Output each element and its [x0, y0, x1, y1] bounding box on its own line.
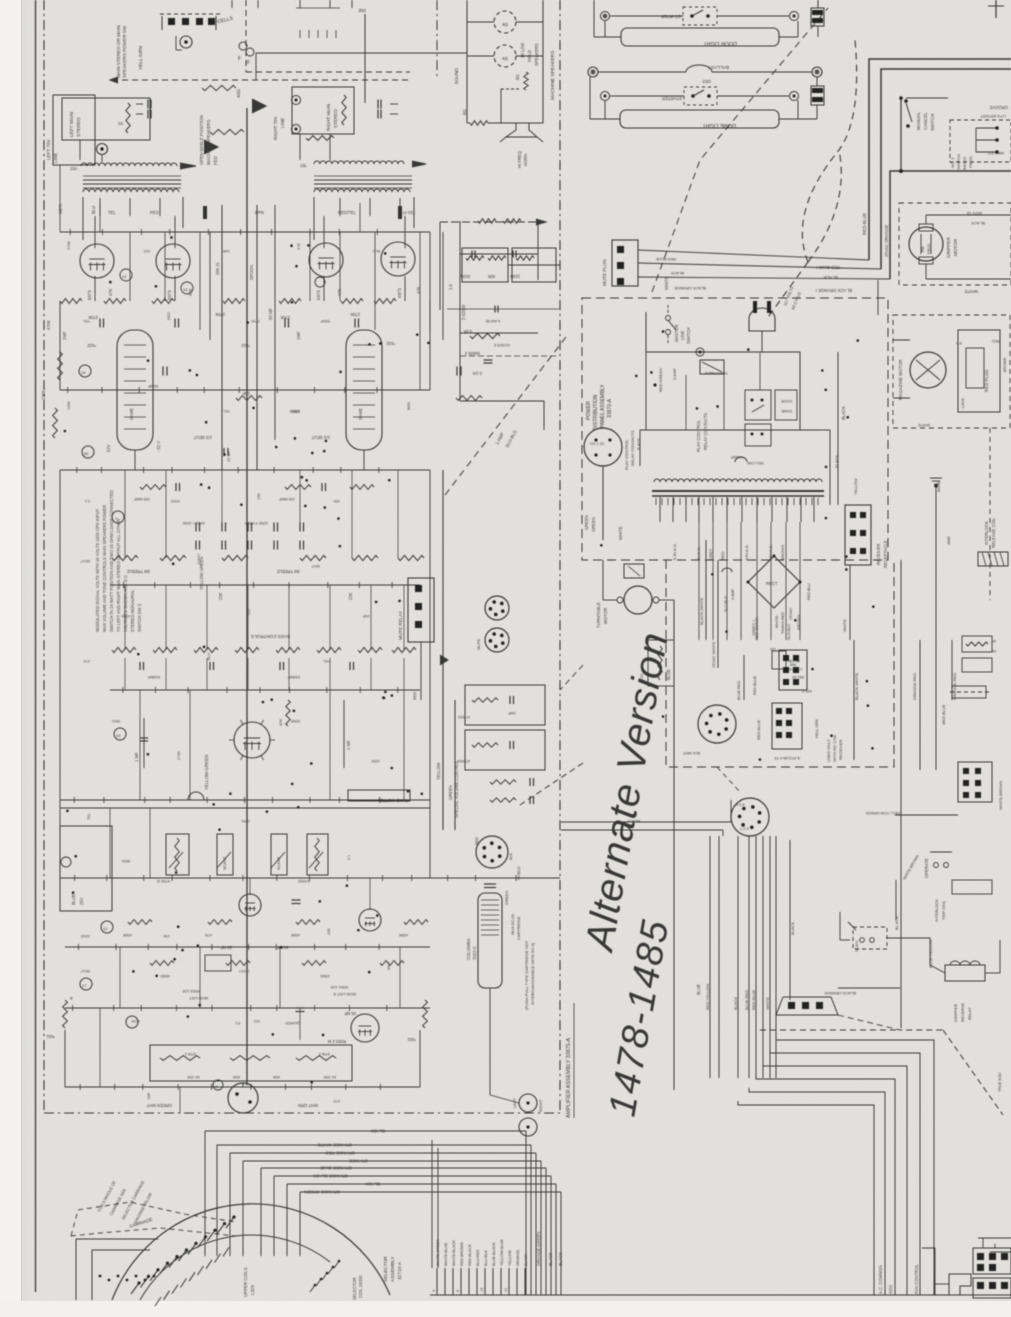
svg-text:MAX VOLUME AND TONE CONTROLS: MAX VOLUME AND TONE CONTROLS MAIN SPEAKE…	[102, 505, 107, 632]
svg-text:RED-YELLOW: RED-YELLOW	[705, 983, 710, 1010]
svg-text:BLUE-BLACK: BLUE-BLACK	[492, 1242, 496, 1266]
svg-text:METI: METI	[58, 204, 63, 214]
svg-text:220Ω: 220Ω	[171, 499, 180, 503]
svg-text:6973: 6973	[167, 290, 172, 300]
svg-text:5OUND: 5OUND	[454, 67, 459, 84]
svg-text:ORANGE: ORANGE	[516, 1249, 520, 1266]
svg-text:RED-BLACK: RED-BLACK	[468, 1244, 472, 1266]
svg-text:RIGHT MAIN: RIGHT MAIN	[326, 104, 331, 131]
svg-text:MOTOR: MOTOR	[603, 608, 608, 624]
svg-text:17: 17	[82, 983, 87, 988]
svg-text:1/2 6EU7: 1/2 6EU7	[193, 435, 212, 440]
svg-text:05 MF: 05 MF	[344, 1011, 356, 1016]
svg-text:6973: 6973	[316, 290, 321, 300]
svg-text:RED: RED	[167, 312, 171, 320]
svg-text:MAGAZINE MOTOR: MAGAZINE MOTOR	[898, 360, 903, 400]
svg-text:1MF: 1MF	[296, 331, 301, 340]
svg-text:6EU7: 6EU7	[81, 969, 91, 973]
svg-text:TEL: TEL	[108, 210, 116, 215]
svg-text:47K: 47K	[205, 933, 212, 938]
svg-text:6.AM 08: 6.AM 08	[486, 319, 500, 323]
svg-text:- 52 V: - 52 V	[156, 441, 161, 452]
svg-text:DOOR LIGHT: DOOR LIGHT	[703, 40, 737, 46]
svg-text:33870-A: 33870-A	[607, 398, 613, 418]
svg-text:A(G): A(G)	[888, 1285, 893, 1294]
svg-text:6EU7: 6EU7	[81, 559, 91, 563]
svg-text:022: 022	[254, 1019, 260, 1023]
svg-text:220K: 220K	[41, 390, 46, 400]
svg-text:STI: STI	[956, 341, 962, 345]
svg-text:SWITCH SW 3: SWITCH SW 3	[137, 603, 142, 632]
svg-text:1MF: 1MF	[147, 1092, 151, 1100]
svg-text:ORANGE: ORANGE	[349, 1159, 368, 1164]
svg-text:TURNTABLE: TURNTABLE	[596, 602, 601, 628]
svg-text:22K: 22K	[348, 592, 353, 600]
svg-text:TURNTABLE: TURNTABLE	[704, 371, 728, 376]
svg-text:0.1: 0.1	[347, 855, 351, 860]
svg-text:K09: K09	[232, 1075, 240, 1080]
svg-text:SELECTOR: SELECTOR	[352, 1278, 357, 1301]
svg-text:033MF: 033MF	[147, 675, 160, 680]
svg-text:ORANGE-WHITE: ORANGE-WHITE	[317, 1143, 352, 1148]
svg-text:270K: 270K	[350, 312, 360, 317]
svg-text:BLUE-YELLOW: BLUE-YELLOW	[928, 939, 933, 968]
svg-text:SELECTOR: SELECTOR	[383, 1256, 389, 1282]
svg-text:00605 2: 00605 2	[464, 351, 480, 356]
svg-text:OE3: OE3	[702, 79, 711, 84]
svg-text:220Ω: 220Ω	[81, 934, 90, 938]
svg-text:25VAC WHITE: 25VAC WHITE	[711, 641, 716, 668]
svg-text:SWITCH: SWITCH	[686, 327, 691, 344]
svg-text:HELL GRN: HELL GRN	[815, 719, 819, 738]
svg-text:LINE: LINE	[280, 118, 285, 128]
svg-text:1MF: 1MF	[222, 249, 230, 253]
svg-text:GRIPPER: GRIPPER	[946, 237, 951, 258]
svg-text:MASTER: MASTER	[674, 325, 679, 342]
svg-text:FIELD: FIELD	[927, 243, 931, 254]
svg-text:3685: 3685	[946, 535, 951, 545]
svg-text:BLACK: BLACK	[371, 1129, 385, 1134]
svg-text:BL ACK ORANGE I: BL ACK ORANGE I	[816, 288, 852, 293]
svg-text:50 MF: 50 MF	[268, 308, 273, 320]
svg-text:260 J1: 260 J1	[215, 262, 220, 275]
svg-text:AMPLIFIER ASSEMBLY 33875-A: AMPLIFIER ASSEMBLY 33875-A	[566, 1037, 572, 1118]
svg-text:TRIP COIL: TRIP COIL	[941, 900, 946, 920]
svg-text:GRN: GRN	[241, 819, 250, 823]
svg-text:CARTRIDGE: CARTRIDGE	[516, 916, 521, 940]
svg-text:50MF: 50MF	[147, 384, 158, 389]
svg-text:40Ω: 40Ω	[236, 89, 242, 98]
svg-text:RED-BLUE: RED-BLUE	[862, 213, 867, 235]
svg-text:100K: 100K	[67, 401, 71, 410]
svg-text:RELAY CONTACTS: RELAY CONTACTS	[703, 413, 708, 450]
svg-text:J50: J50	[358, 8, 366, 14]
svg-text:8Ω: 8Ω	[515, 75, 520, 80]
svg-text:BLUE-RED: BLUE-RED	[737, 681, 741, 700]
svg-text:ORANGE-GREEN: ORANGE-GREEN	[304, 1190, 340, 1195]
svg-text:4700 Ω: 4700 Ω	[157, 879, 170, 884]
svg-text:FAN CONTROL: FAN CONTROL	[914, 1264, 919, 1294]
svg-text:270K: 270K	[177, 751, 181, 760]
svg-text:OS 1 20: OS 1 20	[590, 442, 604, 446]
svg-text:15: 15	[480, 1288, 484, 1292]
svg-text:DISTRIBUTION: DISTRIBUTION	[593, 394, 599, 430]
svg-text:3M TREBLE: 3M TREBLE	[127, 569, 150, 574]
svg-text:GREEN WHT: GREEN WHT	[146, 1103, 172, 1108]
svg-text:SWITCH IN 24 WATT POSITION AND: SWITCH IN 24 WATT POSITION AND TWO 16 OH…	[109, 490, 114, 632]
svg-text:R353 2 M: R353 2 M	[327, 1039, 346, 1044]
svg-text:SWITCH: SWITCH	[930, 114, 935, 131]
svg-text:COLUMBIA: COLUMBIA	[466, 938, 471, 960]
svg-text:RED: RED	[992, 339, 1000, 343]
svg-text:BLUE: BLUE	[666, 669, 671, 680]
svg-text:4Ω: 4Ω	[502, 56, 509, 61]
svg-text:BRN: BRN	[407, 402, 411, 410]
svg-text:RED: RED	[112, 719, 120, 723]
svg-text:BLACK: BLACK	[524, 1253, 528, 1266]
svg-text:33K: 33K	[327, 928, 331, 935]
svg-text:MOD-LIST A: MOD-LIST A	[333, 992, 356, 997]
svg-text:DOW: DOW	[460, 274, 470, 279]
svg-text:505: 505	[487, 274, 495, 279]
svg-text:MED-BLUE: MED-BLUE	[941, 704, 946, 725]
svg-text:WHITE-: WHITE-	[775, 614, 779, 628]
svg-text:430K: 430K	[290, 933, 300, 938]
svg-text:47K: 47K	[333, 1099, 340, 1103]
svg-text:ORANGE-BLUE: ORANGE-BLUE	[320, 1166, 352, 1171]
svg-text:4700Ω: 4700Ω	[458, 759, 470, 764]
svg-text:POWER: POWER	[586, 401, 592, 420]
svg-text:ORANGE-GREEN: ORANGE-GREEN	[536, 1232, 541, 1266]
svg-text:A 3Y113A-0 T3: A 3Y113A-0 T3	[775, 756, 800, 760]
svg-text:RED-BROWN: RED-BROWN	[460, 1242, 464, 1266]
svg-text:R553 126: R553 126	[182, 989, 200, 994]
svg-text:BRN: BRN	[255, 210, 264, 215]
svg-text:47K: 47K	[278, 719, 283, 726]
svg-text:SHIELD: SHIELD	[517, 866, 521, 880]
svg-text:QUH02I: QUH02I	[286, 1021, 300, 1026]
svg-text:RELEASE COIL: RELEASE COIL	[991, 517, 996, 548]
svg-text:*001: *001	[46, 1034, 55, 1039]
svg-text:WHITE: WHITE	[842, 619, 847, 632]
svg-text:TRUE KOU: TRUE KOU	[998, 1072, 1002, 1092]
svg-text:YELLOW: YELLOW	[747, 461, 764, 466]
svg-text:2-02550: 2-02550	[461, 304, 466, 320]
svg-text:47K: 47K	[337, 288, 342, 296]
svg-text:WHITE: WHITE	[964, 289, 978, 294]
svg-text:RED-BLUE: RED-BLUE	[751, 989, 756, 1010]
svg-text:INTERCHANGEABLE WITH SC-4): INTERCHANGEABLE WITH SC-4)	[530, 942, 535, 1005]
svg-text:12AX7: 12AX7	[197, 554, 201, 565]
svg-text:15L: 15L	[300, 163, 308, 168]
svg-text:BROWN: BROWN	[780, 545, 785, 560]
svg-text:400Ω: 400Ω	[160, 974, 170, 979]
svg-text:RECEIVER: RECEIVER	[838, 739, 843, 760]
svg-text:BROWN: BROWN	[1003, 357, 1007, 372]
svg-text:470K: 470K	[121, 614, 130, 618]
svg-text:TO LEFT AND RIGHT MAIN STEREO: TO LEFT AND RIGHT MAIN STEREO OUTPUT ALL…	[116, 519, 121, 632]
svg-text:DELL-YCM-GREEN: DELL-YCM-GREEN	[866, 811, 900, 815]
svg-text:12AX7: 12AX7	[239, 969, 250, 973]
svg-text:33K: 33K	[333, 499, 340, 503]
svg-text:MUTE: MUTE	[476, 638, 481, 650]
svg-text:MU3.SC-03: MU3.SC-03	[510, 913, 515, 935]
svg-text:BALLAST: BALLAST	[708, 64, 729, 70]
svg-text:WHITE: WHITE	[765, 997, 770, 1010]
svg-text:BLACK: BLACK	[366, 1182, 380, 1187]
svg-text:3M TREBLE: 3M TREBLE	[277, 569, 300, 574]
svg-text:YELLOW-GREEN: YELLOW-GREEN	[204, 755, 209, 790]
svg-text:SPEAKERS POWER SW: SPEAKERS POWER SW	[122, 25, 127, 78]
svg-text:STEREO: STEREO	[76, 117, 82, 137]
svg-text:12: 12	[122, 275, 126, 279]
svg-text:MUTE RELAY: MUTE RELAY	[398, 611, 403, 640]
svg-text:RECT: RECT	[766, 581, 778, 586]
svg-text:BLU: BLU	[91, 206, 96, 214]
svg-text:WHT GRN: WHT GRN	[298, 1103, 318, 1108]
svg-text:47K: 47K	[108, 288, 113, 296]
svg-text:25V: 25V	[79, 897, 84, 905]
svg-text:PM: PM	[921, 247, 925, 252]
svg-text:BLACK: BLACK	[558, 1252, 563, 1266]
svg-text:WOV 18: WOV 18	[966, 211, 982, 216]
svg-text:3: 3	[432, 1290, 436, 1292]
svg-text:1 MF: 1 MF	[134, 752, 139, 762]
svg-text:270K: 270K	[251, 319, 260, 323]
svg-text:6.3V.A.G.: 6.3V.A.G.	[672, 543, 677, 560]
svg-text:GRN: GRN	[291, 409, 300, 413]
svg-text:SLO-BLD: SLO-BLD	[787, 623, 791, 640]
svg-text:YELLOW-BLUE: YELLOW-BLUE	[500, 1239, 504, 1266]
svg-text:6973: 6973	[397, 288, 402, 298]
svg-text:BLUE-RED: BLUE-RED	[744, 990, 749, 1010]
svg-text:6V.A.G.: 6V.A.G.	[696, 546, 701, 560]
svg-text:F: F	[238, 56, 241, 62]
svg-text:INTERLOCK: INTERLOCK	[934, 899, 939, 922]
svg-text:BLACK: BLACK	[627, 819, 640, 824]
svg-text:RIGHT 70V: RIGHT 70V	[273, 115, 278, 140]
svg-text:1 MF: 1 MF	[346, 740, 351, 750]
svg-text:4700Ω: 4700Ω	[458, 715, 470, 720]
svg-text:20: 20	[116, 733, 121, 738]
svg-text:24V.A.G.: 24V.A.G.	[744, 544, 749, 560]
svg-text:0.1: 0.1	[85, 499, 90, 503]
svg-text:BLACK: BLACK	[671, 271, 684, 276]
svg-text:STARTER: STARTER	[661, 14, 681, 19]
svg-text:YELLOW: YELLOW	[508, 1250, 512, 1266]
svg-text:BASS CONTROLS: BASS CONTROLS	[251, 634, 290, 639]
svg-text:0.1m: 0.1m	[472, 371, 482, 376]
svg-text:GREEN: GREEN	[591, 517, 596, 532]
svg-text:470K: 470K	[46, 320, 51, 330]
svg-text:SCAN: SCAN	[854, 941, 859, 952]
svg-text:COIL 16330: COIL 16330	[358, 1275, 363, 1298]
svg-text:22 MF: 22 MF	[226, 450, 231, 462]
svg-text:WHITE-BLACK: WHITE-BLACK	[452, 1240, 456, 1266]
svg-text:MAIN STEREO OR MAIN: MAIN STEREO OR MAIN	[116, 25, 121, 78]
svg-text:WHT: WHT	[387, 961, 391, 970]
svg-text:02: 02	[992, 649, 996, 653]
svg-text:60: 60	[84, 452, 88, 456]
svg-text:32710-A: 32710-A	[397, 1261, 403, 1280]
svg-text:YELLOW: YELLOW	[853, 478, 858, 495]
svg-text:25VAC: 25VAC	[788, 608, 793, 620]
svg-text:RECEIVER: RECEIVER	[876, 544, 881, 565]
svg-text:270K: 270K	[215, 312, 225, 317]
svg-text:WITH RD 1736: WITH RD 1736	[832, 734, 837, 762]
svg-text:40K: 40K	[273, 1075, 280, 1080]
svg-text:RED/TEL: RED/TEL	[338, 210, 356, 215]
svg-text:RED PLUG: RED PLUG	[984, 369, 989, 392]
svg-text:BLACK-ORANGE: BLACK-ORANGE	[674, 286, 706, 291]
svg-text:YELL-GRN: YELL-GRN	[138, 45, 144, 70]
svg-text:BLU-BLK: BLU-BLK	[484, 1250, 488, 1266]
svg-text:HIV: HIV	[640, 673, 644, 680]
svg-text:15K: 15K	[163, 934, 170, 938]
svg-text:DOME LIGHT: DOME LIGHT	[702, 122, 736, 128]
svg-text:WHITE-BROWN: WHITE-BROWN	[998, 780, 1003, 810]
svg-text:≡: ≡	[70, 996, 73, 1002]
svg-text:RED-BLUE: RED-BLUE	[753, 675, 757, 695]
svg-text:1/2 6EU7: 1/2 6EU7	[311, 435, 330, 440]
svg-text:13: 13	[183, 288, 187, 292]
svg-text:REL AY: REL AY	[791, 675, 804, 679]
svg-text:FIELD: FIELD	[527, 50, 532, 62]
svg-text:BLACK-WHITE: BLACK-WHITE	[699, 597, 704, 625]
svg-text:BL ACK: BL ACK	[823, 275, 838, 280]
svg-text:470K: 470K	[67, 241, 71, 250]
svg-text:BLACK: BLACK	[548, 1252, 553, 1266]
svg-text:BLU: BLU	[207, 652, 211, 660]
svg-text:BLU-YEL: BLU-YEL	[398, 210, 416, 215]
svg-text:LEFT MAIN: LEFT MAIN	[69, 111, 75, 137]
svg-text:14: 14	[81, 370, 86, 375]
svg-text:(PUSH-PULL TYPE CARTRIDGE NOT: (PUSH-PULL TYPE CARTRIDGE NOT	[524, 940, 529, 1010]
svg-text:F: F	[247, 60, 250, 66]
svg-text:*022: *022	[241, 343, 250, 348]
svg-text:2200 TYPER: 2200 TYPER	[245, 521, 268, 526]
svg-text:21: 21	[504, 1288, 508, 1292]
svg-text:GREEN: GREEN	[448, 785, 453, 800]
svg-text:110Ω: 110Ω	[510, 274, 520, 279]
svg-text:22K: 22K	[218, 592, 223, 600]
svg-text:HI FREQ: HI FREQ	[517, 150, 522, 168]
svg-text:BLACK: BLACK	[733, 997, 738, 1010]
svg-text:TRANS-RED: TRANS-RED	[781, 612, 785, 634]
svg-text:STEREO: STEREO	[333, 109, 338, 128]
svg-text:MACHINE SPEAKERS: MACHINE SPEAKERS	[550, 51, 556, 100]
svg-text:STB-1: STB-1	[318, 1052, 330, 1057]
svg-text:PEO: PEO	[150, 210, 160, 215]
svg-text:BLU-RED: BLU-RED	[476, 1249, 480, 1266]
svg-text:YEL: YEL	[83, 319, 90, 323]
svg-text:SAME: SAME	[129, 408, 134, 420]
svg-text:BL ACK: BL ACK	[894, 916, 899, 930]
svg-text:GREEN: GREEN	[584, 515, 589, 530]
svg-text:HORN: HORN	[523, 154, 528, 166]
svg-text:RED-BLUE: RED-BLUE	[756, 719, 761, 740]
svg-text:CANCEL: CANCEL	[923, 112, 928, 130]
svg-text:3 AMP: 3 AMP	[731, 588, 735, 600]
svg-text:12: 12	[103, 926, 108, 931]
svg-text:BL ACK: BL ACK	[971, 221, 985, 226]
svg-text:WHT: WHT	[311, 564, 320, 568]
svg-text:BLK: BLK	[509, 852, 513, 860]
svg-text:RED-GREEN: RED-GREEN	[658, 368, 663, 392]
svg-text:50MF: 50MF	[320, 319, 330, 323]
svg-text:47K: 47K	[188, 288, 193, 296]
svg-text:USED ONLY: USED ONLY	[826, 739, 831, 762]
svg-text:BLACK-WHITE: BLACK-WHITE	[854, 672, 859, 700]
svg-text:RATED: RATED	[962, 157, 967, 170]
svg-text:RED: RED	[720, 551, 725, 560]
svg-text:WHITE-BLUE: WHITE-BLUE	[444, 1242, 448, 1266]
svg-text:BROWN: BROWN	[796, 615, 801, 630]
svg-text:*022: *022	[87, 343, 96, 348]
svg-text:TEL: TEL	[223, 409, 230, 413]
svg-text:LEFT: LEFT	[512, 1098, 517, 1108]
svg-text:ORANGE-RED: ORANGE-RED	[325, 1151, 355, 1156]
svg-text:BLACK-ORANGE: BLACK-ORANGE	[824, 991, 856, 996]
svg-text:L329: L329	[250, 1285, 255, 1295]
svg-text:6973: 6973	[87, 290, 92, 300]
svg-text:1.6: 1.6	[448, 284, 453, 290]
svg-text:RELAY: RELAY	[967, 1007, 972, 1020]
svg-text:20VAC ORANGE: 20VAC ORANGE	[884, 225, 889, 257]
svg-text:F1: F1	[235, 1021, 240, 1026]
svg-text:A.C. COMMON: A.C. COMMON	[878, 1265, 883, 1294]
svg-text:RECEPTACLE: RECEPTACLE	[883, 540, 888, 568]
svg-text:OPERATE: OPERATE	[924, 858, 929, 878]
svg-text:RAND MOTTEL: RAND MOTTEL	[377, 798, 408, 803]
svg-text:BLUE: BLUE	[71, 894, 76, 905]
svg-text:3 AMP: 3 AMP	[672, 368, 677, 380]
svg-text:LACK: LACK	[961, 398, 965, 408]
svg-text:MODULATED SIGNAL VOLTS WITH 16: MODULATED SIGNAL VOLTS WITH 16 VOLTS 100…	[95, 508, 100, 632]
svg-text:MOD LIST: MOD LIST	[189, 996, 208, 1001]
svg-text:W: W	[992, 639, 996, 643]
svg-text:RIGHT: RIGHT	[538, 1099, 543, 1112]
svg-text:*001: *001	[407, 1037, 416, 1042]
svg-text:ORANGE-RED: ORANGE-RED	[912, 673, 917, 700]
svg-text:15K: 15K	[257, 493, 261, 500]
svg-text:52V: 52V	[106, 444, 111, 452]
svg-text:430K: 430K	[398, 933, 408, 938]
svg-text:1MF: 1MF	[507, 711, 516, 716]
svg-text:3152-C: 3152-C	[472, 946, 477, 960]
svg-text:MOTOR: MOTOR	[953, 238, 958, 256]
svg-text:47K: 47K	[83, 659, 90, 663]
svg-text:PANEL ASSEMBLY: PANEL ASSEMBLY	[600, 384, 606, 428]
svg-text:OPEN WHILE POSITION: OPEN WHILE POSITION	[199, 115, 204, 165]
svg-text:MACHINE SPEAKERS: MACHINE SPEAKERS	[206, 120, 211, 165]
svg-text:022: 022	[247, 609, 251, 615]
svg-text:BRN: BRN	[122, 859, 130, 863]
svg-text:STARTER: STARTER	[662, 96, 682, 101]
svg-text:PLAY CONTROL: PLAY CONTROL	[696, 419, 701, 452]
svg-text:STEREO-MONAURAL: STEREO-MONAURAL	[130, 589, 135, 632]
svg-text:470K: 470K	[131, 1019, 140, 1023]
svg-text:LITG ARTERT: LITG ARTERT	[980, 114, 1006, 119]
svg-text:1MF: 1MF	[362, 614, 370, 618]
svg-text:150 MMF: 150 MMF	[133, 497, 150, 501]
svg-text:BLACK: BLACK	[790, 922, 795, 935]
svg-text:15K: 15K	[242, 391, 250, 396]
svg-text:RED-BLUE: RED-BLUE	[655, 257, 676, 262]
svg-text:RED: RED	[412, 691, 417, 700]
svg-text:WHITE: WHITE	[917, 423, 930, 427]
svg-text:#1 200: #1 200	[323, 1075, 336, 1080]
